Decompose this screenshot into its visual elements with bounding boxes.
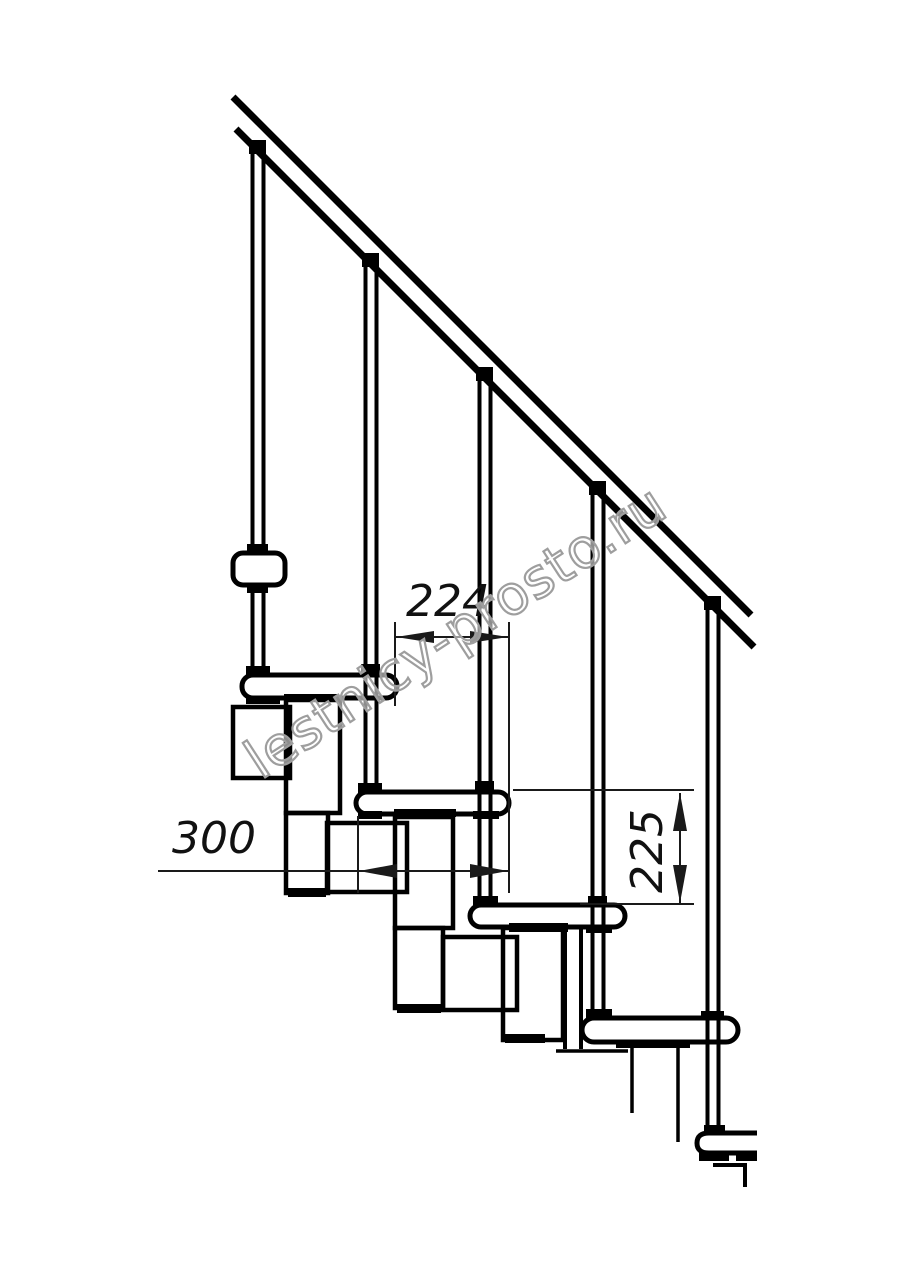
baluster-1 <box>253 152 264 675</box>
baluster-2 <box>366 265 377 792</box>
baluster-3 <box>480 379 491 905</box>
break-line <box>713 1165 745 1187</box>
arrow-left <box>396 631 434 643</box>
handrail-lower-line <box>236 129 754 647</box>
baluster-4 <box>593 493 604 1018</box>
tread-4 <box>582 1018 738 1042</box>
baluster-5 <box>708 608 719 1133</box>
tread-5-partial <box>697 1133 757 1153</box>
dim-300-label: 300 <box>172 813 256 864</box>
baluster-1-bracket <box>233 553 285 585</box>
arrow-down <box>673 865 687 903</box>
dim-224-label: 224 <box>406 576 490 627</box>
arrow-up <box>673 793 687 831</box>
drawing-svg: 224 300 225 <box>0 0 914 1280</box>
staircase-technical-drawing: 224 300 225 lestnicy-prosto.ru <box>0 0 914 1280</box>
dim-225-label: 225 <box>622 809 673 893</box>
handrail <box>233 97 754 647</box>
